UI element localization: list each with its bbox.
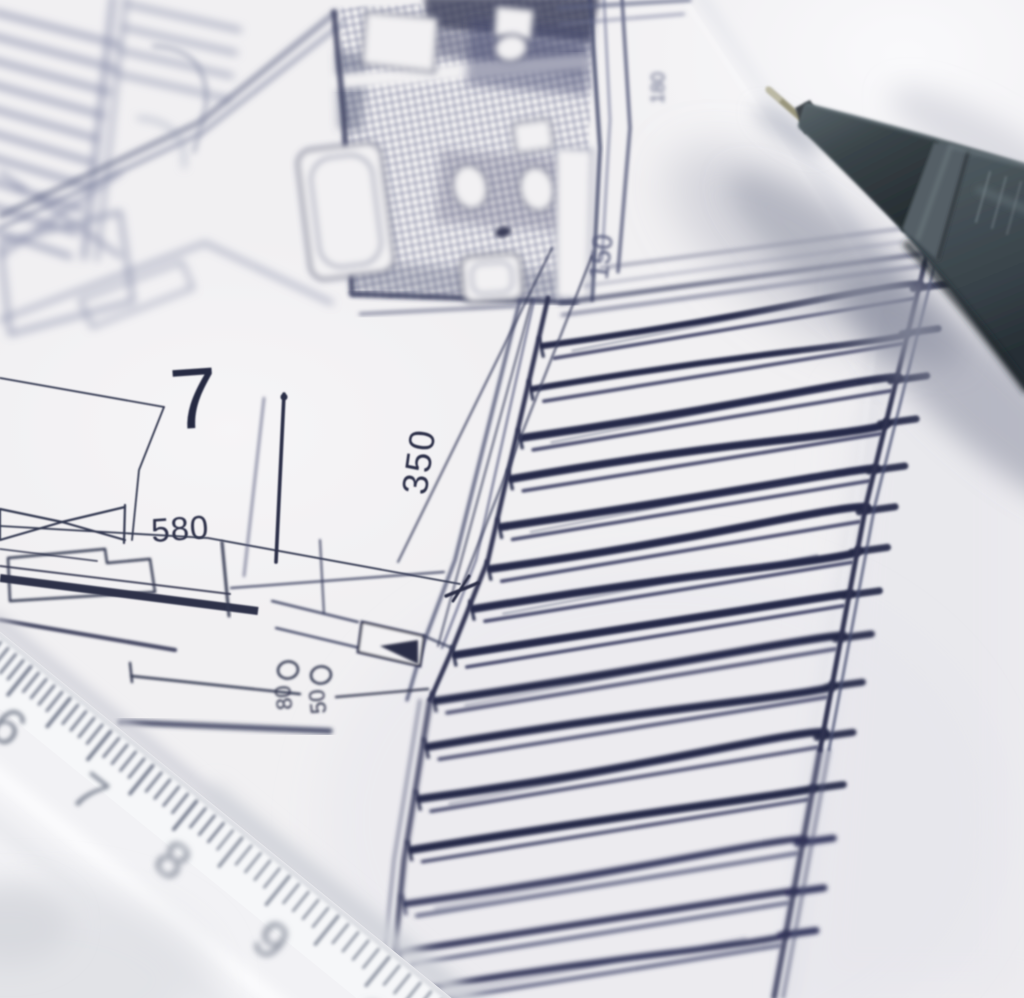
- svg-text:580: 580: [150, 508, 211, 549]
- svg-text:50: 50: [304, 688, 331, 715]
- svg-text:180: 180: [647, 72, 669, 104]
- svg-text:7: 7: [167, 350, 221, 449]
- svg-text:150: 150: [583, 233, 618, 281]
- svg-text:80: 80: [270, 684, 297, 711]
